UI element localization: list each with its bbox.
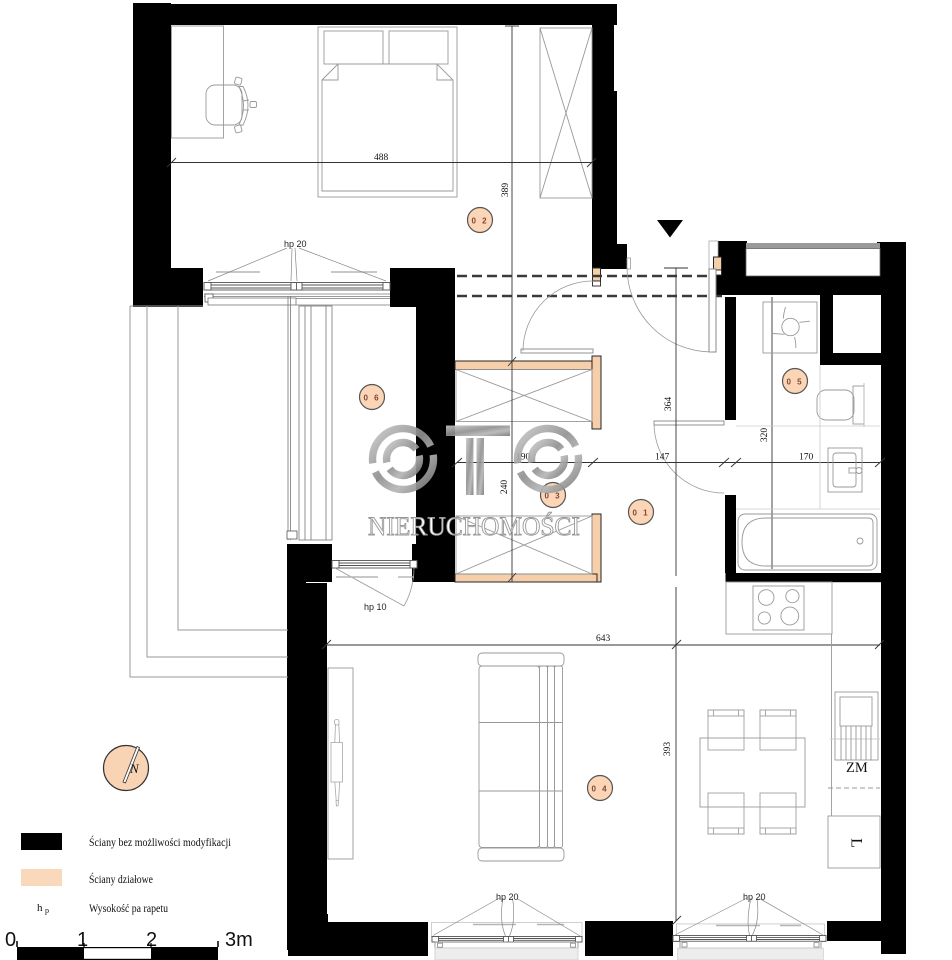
svg-text:0 5: 0 5 (786, 378, 803, 387)
svg-text:hp 20: hp 20 (743, 892, 766, 902)
svg-text:hp 10: hp 10 (364, 602, 387, 612)
svg-text:Ściany działowe: Ściany działowe (89, 872, 153, 886)
svg-text:L: L (847, 838, 864, 848)
svg-text:0: 0 (5, 929, 16, 951)
svg-text:147: 147 (655, 453, 670, 463)
svg-text:364: 364 (664, 397, 674, 412)
svg-text:h: h (37, 902, 43, 914)
svg-text:170: 170 (799, 453, 814, 463)
svg-text:240: 240 (500, 480, 510, 495)
svg-text:488: 488 (374, 153, 389, 163)
svg-text:320: 320 (760, 428, 770, 443)
svg-text:643: 643 (596, 634, 611, 644)
svg-text:393: 393 (663, 742, 673, 757)
svg-text:N: N (129, 761, 140, 776)
svg-text:NIERUCHOMOŚCI: NIERUCHOMOŚCI (368, 512, 580, 541)
svg-text:0 1: 0 1 (632, 509, 649, 518)
svg-text:0 4: 0 4 (591, 785, 608, 794)
svg-text:hp 20: hp 20 (496, 892, 519, 902)
svg-text:Ściany bez możliwości modyfika: Ściany bez możliwości modyfikacji (89, 835, 231, 849)
svg-text:0 6: 0 6 (363, 394, 380, 403)
svg-text:Wysokość pa rapetu: Wysokość pa rapetu (89, 903, 168, 915)
svg-text:3m: 3m (225, 929, 253, 951)
svg-text:hp 20: hp 20 (284, 239, 307, 249)
svg-text:389: 389 (501, 183, 511, 198)
svg-text:p: p (45, 906, 49, 915)
svg-text:ZM: ZM (846, 760, 868, 776)
svg-text:0 2: 0 2 (471, 217, 488, 226)
